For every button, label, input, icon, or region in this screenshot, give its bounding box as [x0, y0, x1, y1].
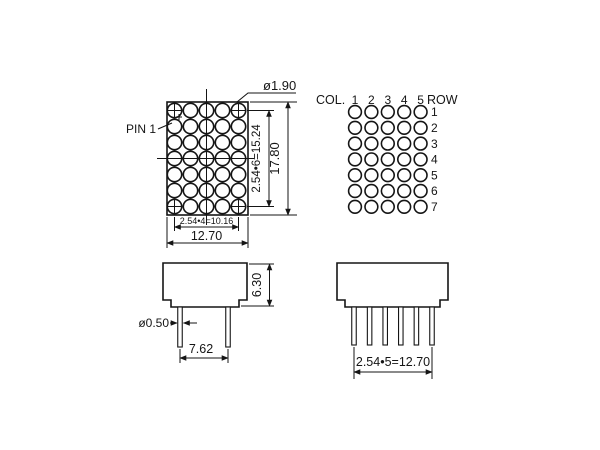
pin-map-dot — [398, 106, 411, 119]
dim-body-height-label: 6.30 — [250, 273, 264, 297]
pin — [430, 307, 435, 345]
dim-pin-pitch-label: 7.62 — [189, 342, 213, 356]
pin-map-dot — [349, 106, 362, 119]
pin — [399, 307, 404, 345]
led-dot — [215, 119, 229, 133]
pin-map-dot — [365, 169, 378, 182]
led-dot — [167, 119, 181, 133]
led-dot — [231, 135, 245, 149]
row-number-4: 4 — [431, 153, 438, 167]
side-view: 6.30 ø0.50 7.62 — [138, 263, 274, 363]
pin-map-dot — [414, 153, 427, 166]
col-label: COL. — [316, 93, 345, 107]
pin-map-dot — [381, 153, 394, 166]
led-dot — [215, 183, 229, 197]
led-dot — [215, 167, 229, 181]
pin-map-dot — [381, 185, 394, 198]
pin-diameter-label: ø0.50 — [138, 316, 169, 330]
dim-pin-pitch: 7.62 — [180, 342, 228, 363]
pin-map-dot — [381, 106, 394, 119]
row-number-7: 7 — [431, 200, 438, 214]
dim-height-label: 17.80 — [267, 142, 282, 175]
pin-map-dot — [414, 185, 427, 198]
pin1-label: PIN 1 — [126, 122, 156, 136]
pin-map-dot — [398, 121, 411, 134]
pin-map-dot — [365, 106, 378, 119]
led-dot — [215, 103, 229, 117]
dim-pin-row: 2.54•5=12.70 — [354, 347, 432, 379]
led-dot — [183, 103, 197, 117]
pin-map-dot — [349, 121, 362, 134]
pin-map-dot — [365, 137, 378, 150]
pin-map-dot — [365, 153, 378, 166]
pin-map-dot — [398, 185, 411, 198]
pin-map-dot — [398, 200, 411, 213]
front-pin-view-pins — [352, 307, 435, 345]
row-number-6: 6 — [431, 184, 438, 198]
front-pin-view-body — [337, 263, 448, 307]
pin — [226, 307, 231, 347]
front-view: PIN 1 ø1.90 2.54•6=15.24 17.80 2.54•4=10… — [126, 78, 297, 248]
pin-map-dot — [381, 137, 394, 150]
pin-map-dot — [414, 137, 427, 150]
led-dot — [167, 183, 181, 197]
pin-map-dot — [414, 169, 427, 182]
pin-map-dot — [349, 169, 362, 182]
led-dot — [215, 135, 229, 149]
dim-pin-row-label: 2.54•5=12.70 — [356, 355, 430, 369]
pin-map-dot — [349, 153, 362, 166]
pin-map-dot — [398, 153, 411, 166]
pin-map-dot — [381, 169, 394, 182]
led-dot — [231, 119, 245, 133]
pin-map-dot — [365, 200, 378, 213]
pin — [414, 307, 419, 345]
dot-diameter-leader-line — [237, 93, 296, 102]
led-dot — [183, 167, 197, 181]
led-dot — [167, 167, 181, 181]
pin-map-dot — [398, 137, 411, 150]
dot-matrix-technical-drawing: PIN 1 ø1.90 2.54•6=15.24 17.80 2.54•4=10… — [0, 0, 600, 450]
pin-map-dot — [381, 121, 394, 134]
row-number-1: 1 — [431, 105, 438, 119]
led-dot — [167, 135, 181, 149]
led-dot — [231, 167, 245, 181]
pin — [367, 307, 372, 345]
pin — [383, 307, 388, 345]
drawing-canvas: PIN 1 ø1.90 2.54•6=15.24 17.80 2.54•4=10… — [0, 0, 600, 450]
pin — [178, 307, 183, 347]
pin — [352, 307, 357, 345]
pin-map-dot — [381, 200, 394, 213]
pin-map-dot — [349, 185, 362, 198]
row-number-3: 3 — [431, 137, 438, 151]
row-number-5: 5 — [431, 168, 438, 182]
pin-map: COL. 1 2 3 4 5 ROW 1 2 3 4 5 6 7 — [316, 93, 458, 214]
pin-map-dot — [414, 200, 427, 213]
side-view-body — [163, 263, 247, 307]
pin-diameter-callout: ø0.50 — [138, 316, 197, 330]
pin-map-dot — [349, 137, 362, 150]
pin-map-dot — [414, 121, 427, 134]
led-dot — [231, 183, 245, 197]
pin-map-dot — [349, 200, 362, 213]
row-number-2: 2 — [431, 121, 438, 135]
pin-map-dot — [365, 121, 378, 134]
pin-map-dot — [414, 106, 427, 119]
pin-map-dot — [365, 185, 378, 198]
led-dot — [215, 199, 229, 213]
pin-map-dot-grid — [349, 106, 427, 214]
led-dot — [183, 183, 197, 197]
dim-row-pitch-label: 2.54•6=15.24 — [251, 124, 263, 193]
led-dot — [183, 199, 197, 213]
pin-map-dot — [398, 169, 411, 182]
pin1-leader-line — [158, 123, 172, 129]
led-dot — [183, 119, 197, 133]
dim-width-label: 12.70 — [191, 229, 222, 243]
dot-diameter-label: ø1.90 — [263, 78, 296, 93]
led-dot — [183, 135, 197, 149]
dim-col-pitch-label: 2.54•4=10.16 — [180, 216, 233, 226]
front-pin-view: 2.54•5=12.70 — [337, 263, 448, 379]
side-view-pins — [178, 307, 231, 347]
